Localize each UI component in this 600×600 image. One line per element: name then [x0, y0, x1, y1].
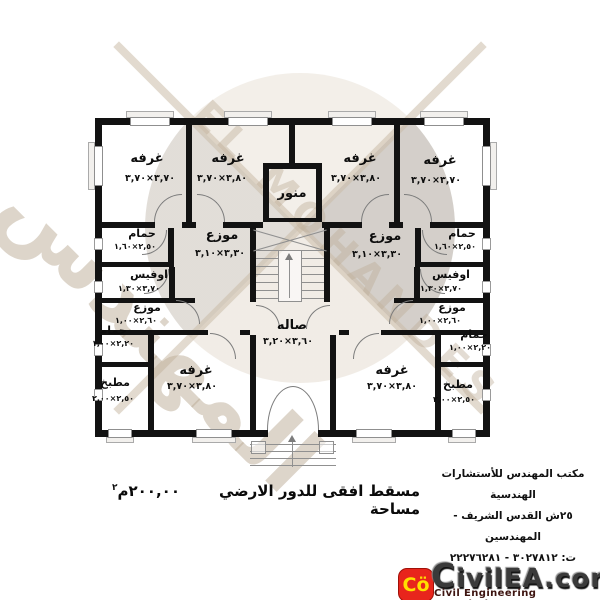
stair-direction-arrow	[289, 258, 290, 298]
room-label-kitchen-l: مطبخ	[100, 376, 130, 389]
window-frame	[490, 142, 497, 190]
room-label-dist-up-r: موزع	[369, 229, 402, 244]
wall-segment	[240, 330, 250, 335]
room-dims-kitchen-r: ٢,٥٠×٢,٠٠	[433, 395, 475, 404]
window	[332, 117, 372, 126]
window	[108, 429, 132, 438]
wall-vent	[482, 389, 491, 401]
window	[196, 429, 232, 438]
room-dims-bath-lo-r: ٢,٢٠×١,٠٠	[449, 343, 491, 352]
room-dims-bed-tcl: ٣,٨٠×٣,٧٠	[197, 173, 247, 184]
window	[228, 117, 268, 126]
wall-segment	[182, 222, 196, 228]
room-dims-bath-lo-l: ٢,٢٠×١,٠٠	[92, 339, 134, 348]
wall-vent	[482, 281, 491, 293]
entrance-planter	[319, 441, 334, 454]
room-label-bath-lo-r: حمام	[460, 328, 488, 341]
room-dims-bed-br: ٣,٨٠×٣,٧٠	[367, 381, 417, 392]
stair-treads-right	[302, 250, 324, 302]
room-label-bed-tcr: غرفه	[343, 151, 376, 166]
window	[130, 117, 170, 126]
wall-segment	[394, 118, 400, 228]
wall-segment	[324, 222, 330, 302]
room-dims-dist-up-l: ٣,٣٠×٣,١٠	[195, 248, 245, 259]
entrance-arrow-head-icon	[288, 435, 296, 442]
room-label-office-r: اوفيس	[432, 268, 470, 281]
room-label-bath-up-l: حمام	[128, 227, 156, 240]
entrance-planter	[251, 441, 266, 454]
stair-treads-left	[256, 250, 278, 302]
wall-segment	[435, 330, 441, 430]
room-dims-dist-up-r: ٣,٣٠×٣,١٠	[352, 249, 402, 260]
window	[482, 146, 491, 186]
wall-segment	[102, 362, 148, 367]
plan-caption: مسقط افقى للدور الارضي مساحة ٢٠٠,٠٠م٢	[112, 482, 420, 518]
room-dims-kitchen-l: ٢,٥٠×٢,٠٠	[92, 394, 134, 403]
wall-segment	[316, 163, 322, 222]
room-label-dist-lo-r: موزع	[438, 301, 466, 314]
room-dims-bed-bl: ٣,٨٠×٣,٧٠	[167, 381, 217, 392]
office-info-line1: مكتب المهندس للأستشارات	[430, 464, 596, 485]
room-dims-bath-up-r: ٢,٥٠×١,٦٠	[434, 242, 476, 251]
door-arc	[293, 386, 319, 430]
office-info-block: مكتب المهندس للأستشارات الهندسية ٢٥ش الق…	[430, 464, 596, 569]
room-label-bed-tl: غرفه	[130, 151, 163, 166]
wall-segment	[148, 330, 154, 430]
room-label-dist-lo-l: موزع	[133, 301, 161, 314]
wall-segment	[389, 222, 403, 228]
window	[424, 117, 464, 126]
room-label-office-l: اوفيس	[130, 268, 168, 281]
window	[452, 429, 476, 438]
entrance-arrow	[292, 441, 293, 467]
wall-segment	[263, 163, 322, 169]
room-label-bed-br: غرفه	[375, 363, 408, 378]
wall-segment	[339, 330, 349, 335]
room-dims-dist-lo-r: ٢,٦٠×١,٠٠	[419, 316, 461, 325]
office-info-line2: الهندسية	[430, 485, 596, 506]
room-dims-bed-tr: ٣,٧٠×٣,٧٠	[411, 175, 461, 186]
room-label-kitchen-r: مطبخ	[443, 378, 473, 391]
wall-segment	[381, 330, 441, 335]
room-dims-bed-tcr: ٣,٨٠×٣,٧٠	[331, 173, 381, 184]
wall-segment	[263, 218, 322, 222]
civilea-subtitle: Civil Engineering Association	[434, 588, 600, 600]
office-info-line3: ٢٥ش القدس الشريف - المهندسين	[430, 506, 596, 548]
wall-vent	[94, 281, 103, 293]
wall-segment	[289, 118, 295, 168]
civilea-badge-icon: Cö	[398, 568, 434, 600]
room-dims-office-l: ٣,٧٠×١,٣٠	[118, 284, 160, 293]
room-label-dist-up-l: موزع	[206, 228, 239, 243]
wall-vent	[94, 238, 103, 250]
wall-segment	[102, 262, 174, 267]
room-label-salon: صاله	[277, 318, 307, 333]
room-dims-bath-up-l: ٢,٥٠×١,٦٠	[114, 242, 156, 251]
wall-segment	[330, 335, 336, 430]
wall-segment	[186, 118, 192, 228]
room-dims-bed-tl: ٣,٧٠×٣,٧٠	[125, 173, 175, 184]
entrance-step-line	[250, 458, 336, 459]
window	[94, 146, 103, 186]
room-label-bed-bl: غرفه	[179, 363, 212, 378]
room-dims-office-r: ٣,٧٠×١,٣٠	[420, 284, 462, 293]
room-label-bed-tcl: غرفه	[211, 151, 244, 166]
wall-segment	[148, 330, 208, 335]
wall-vent	[482, 238, 491, 250]
wall-segment	[441, 362, 487, 367]
room-label-bath-lo-l: حمام	[99, 324, 127, 337]
wall-segment	[250, 335, 256, 430]
plan-area-value: ٢٠٠,٠٠م٢	[112, 482, 180, 500]
plan-caption-text: مسقط افقى للدور الارضي مساحة	[180, 482, 420, 518]
stair-arrow-head-icon	[285, 253, 293, 260]
window	[356, 429, 392, 438]
room-dims-salon: ٣,٦٠×٣,٢٠	[263, 336, 313, 347]
wall-segment	[263, 163, 269, 222]
wall-segment	[415, 262, 487, 267]
room-label-manwar: منور	[278, 186, 307, 201]
floor-plan-sheet: المهندس EL MOHANDES غرفه ٣,٧٠×٣,٧٠ غرفه …	[0, 0, 600, 600]
room-label-bath-up-r: حمام	[448, 227, 476, 240]
entrance-step-line	[250, 465, 336, 466]
room-label-bed-tr: غرفه	[423, 153, 456, 168]
wall-segment	[169, 267, 175, 302]
